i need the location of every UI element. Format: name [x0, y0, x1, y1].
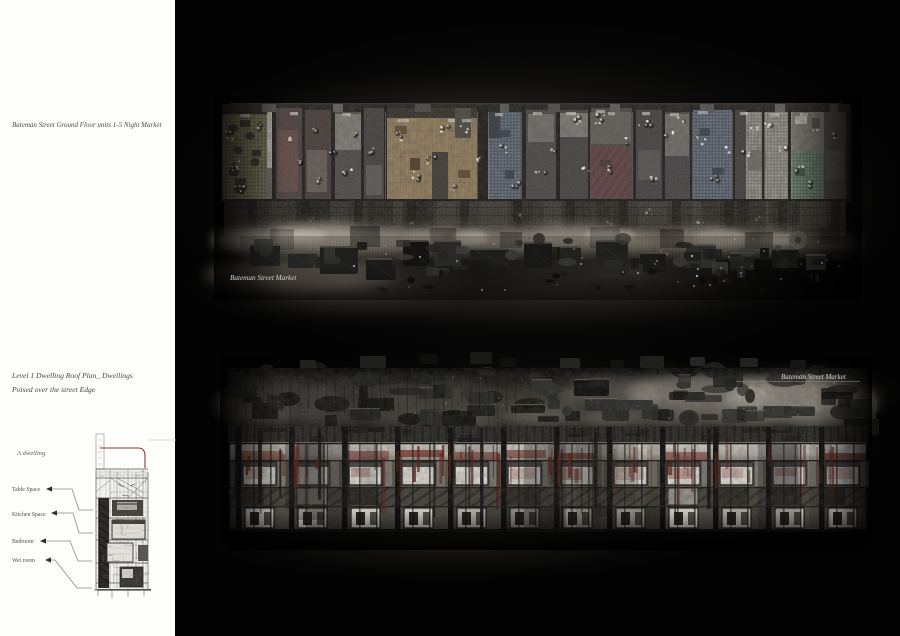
svg-text:A dwelling: A dwelling [16, 450, 46, 457]
svg-text:Bateman Street Market: Bateman Street Market [230, 274, 297, 282]
svg-text:Wet room: Wet room [12, 558, 35, 564]
svg-text:Table Space: Table Space [12, 487, 41, 493]
svg-text:Level 1 Dwelling Roof Plan_ Dw: Level 1 Dwelling Roof Plan_ Dwellings [11, 371, 133, 380]
svg-text:Kitchen Space: Kitchen Space [12, 512, 46, 518]
svg-text:Bateman Street Ground Floor u: Bateman Street Ground Floor units 1-5 Ni… [12, 121, 162, 129]
svg-text:Poised over the street Edge: Poised over the street Edge [11, 385, 96, 394]
svg-text:Bedroom: Bedroom [12, 539, 34, 545]
svg-text:Bateman Street Market: Bateman Street Market [781, 373, 847, 381]
